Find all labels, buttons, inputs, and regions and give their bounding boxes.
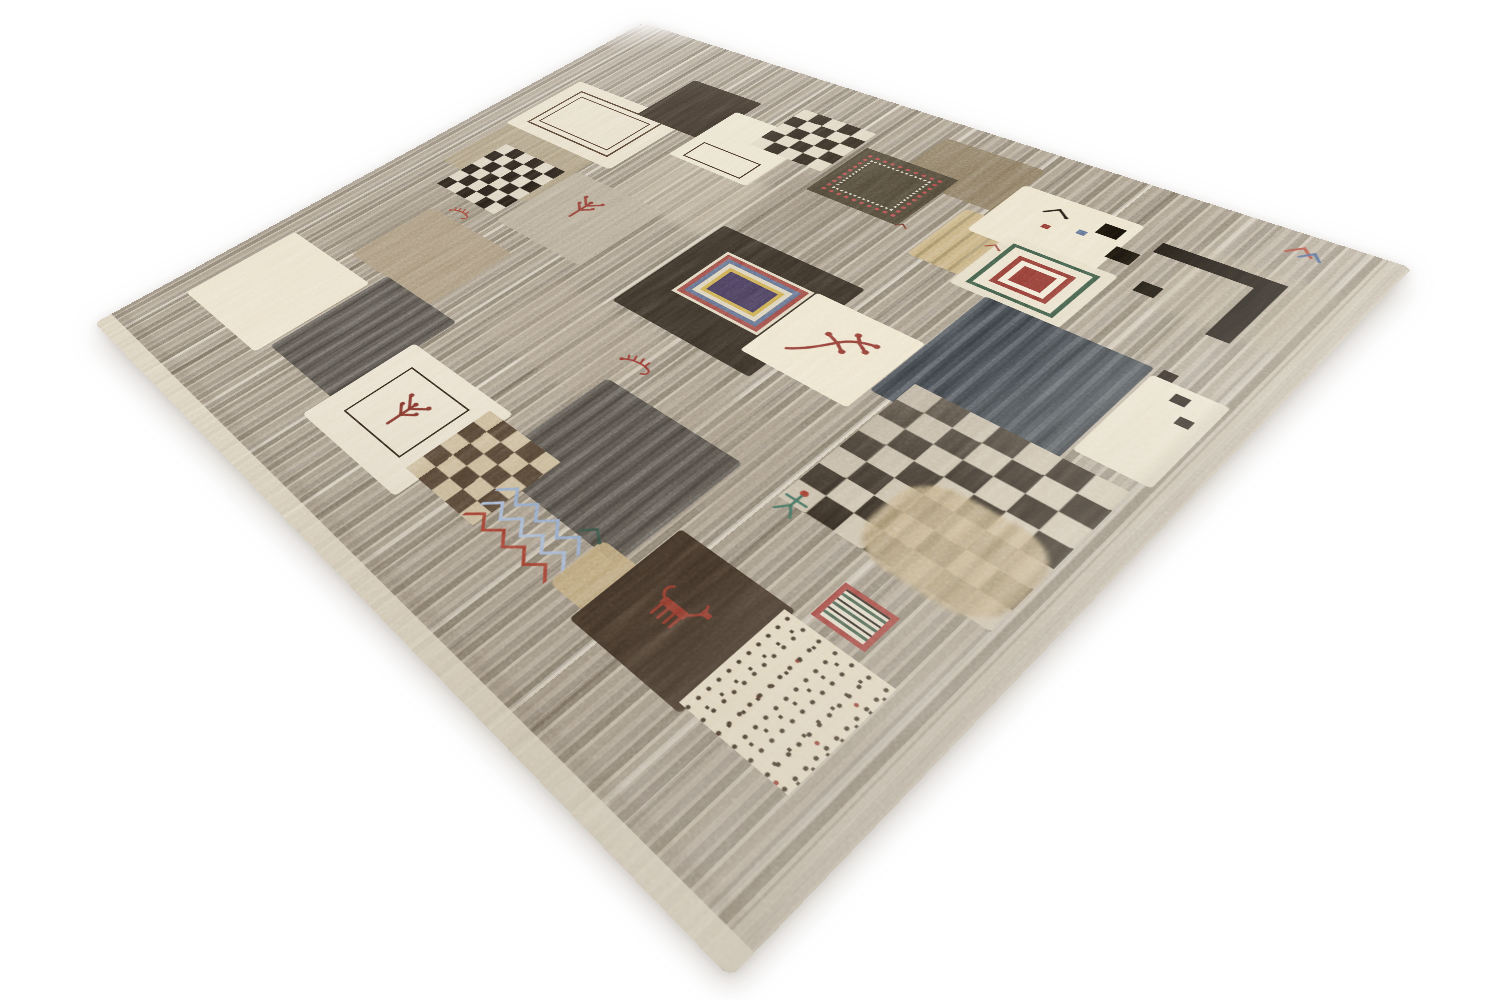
colorful-bird-motif — [1275, 238, 1339, 269]
photo-canvas: { "scene": { "alt": "Photograph of a han… — [0, 0, 1500, 1000]
rug — [95, 23, 1412, 978]
rug-photo: Photograph of a hand-knotted Gabbeh-styl… — [0, 0, 1500, 1000]
rug-patch-layer — [95, 23, 1412, 978]
red-tick-b — [891, 220, 913, 231]
